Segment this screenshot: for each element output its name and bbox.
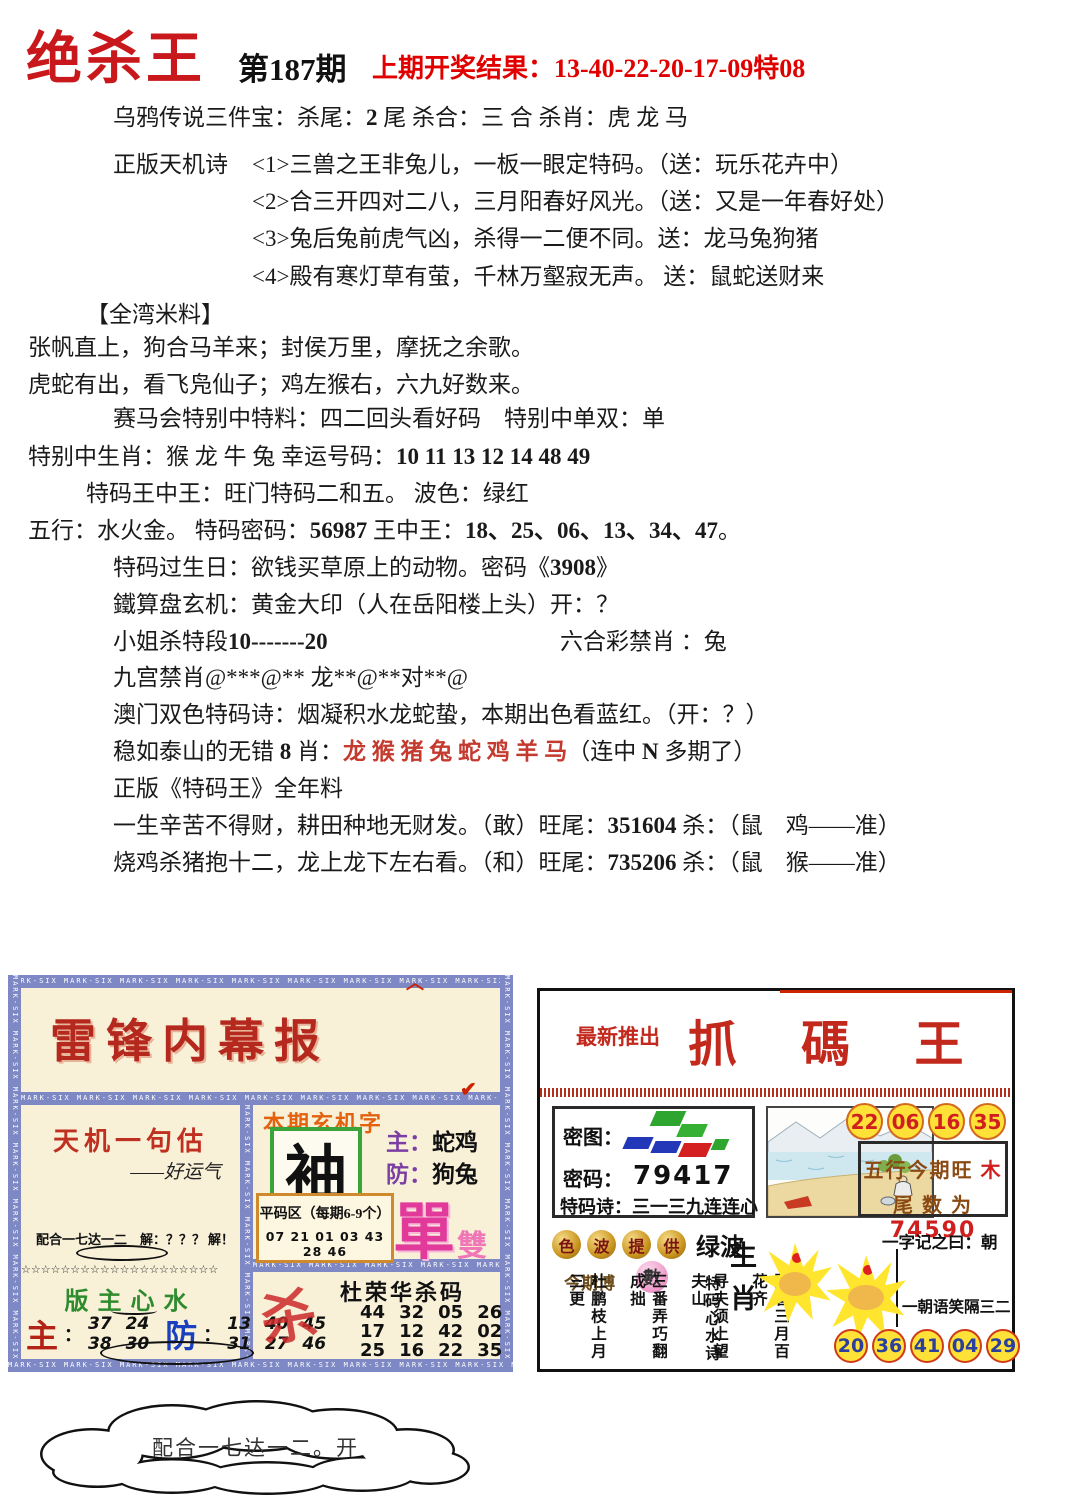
zigzag-divider	[540, 1088, 1012, 1097]
text-segment: 小姐杀特段	[113, 629, 228, 654]
text-segment: N	[642, 739, 659, 764]
lottery-ball: 22	[846, 1103, 883, 1140]
text-segment: 多期了）	[659, 739, 757, 764]
gold-coin: 供	[657, 1230, 686, 1259]
lottery-ball: 20	[834, 1329, 868, 1363]
zhu-label: 主	[26, 1311, 58, 1357]
lottery-ball: 35	[969, 1103, 1006, 1140]
shuang-character: 雙	[457, 1221, 487, 1265]
shici-value: 三一三九连连心	[632, 1197, 758, 1217]
text-segment: 赛马会特别中特料：四二回头看好码 特别中单双：单	[113, 406, 665, 431]
text-segment: 3908	[550, 555, 596, 580]
lottery-ball: 06	[887, 1103, 924, 1140]
text-segment: 九宫禁肖@***@** 龙**@**对**@	[113, 665, 468, 690]
text-segment: 六合彩禁肖 ：兔	[560, 629, 727, 654]
grid-row: 44320526	[360, 1303, 502, 1322]
text-segment: <4>殿有寒灯草有萤，千林万壑寂无声。 送：鼠蛇送财来	[252, 264, 824, 289]
text-segment: <3>兔后兔前虎气凶，杀得一二便不同。送：龙马兔狗猪	[252, 226, 818, 251]
zhuamawang-title: 抓 碼 王	[688, 1005, 990, 1076]
pingma-box: 平码区（每期6-9个） 07 21 01 03 43 28 46	[256, 1193, 394, 1263]
blue-block	[650, 1141, 681, 1153]
lottery-ball: 16	[928, 1103, 965, 1140]
leifeng-title: 雷锋内幕报	[50, 1005, 330, 1071]
zhu-animals-label: 主：	[386, 1130, 432, 1155]
promo-label: 最新推出	[576, 1021, 660, 1051]
text-segment: 735206	[608, 850, 677, 875]
text-line: 澳门双色特码诗：烟凝积水龙蛇蛰，本期出色看蓝红。（开：？）	[113, 695, 769, 729]
text-line: 张帆直上，狗合马羊来；封侯万里，摩抚之余歌。	[28, 328, 534, 362]
poem-line: 杜鹏枝上月三更	[564, 1273, 608, 1375]
lottery-ball: 36	[872, 1329, 906, 1363]
green-block	[711, 1139, 730, 1150]
text-segment: 10 11 13 12 14 48 49	[396, 444, 590, 469]
text-line: <1>三兽之王非兔儿，一板一眼定特码。（送：玩乐花卉中）	[252, 145, 853, 179]
text-line: 【全湾米料】	[86, 295, 224, 329]
text-segment: 2	[366, 105, 378, 130]
grid-cell: 17	[360, 1322, 385, 1341]
text-segment: 特码过生日：欲钱买草原上的动物。密码《	[113, 555, 550, 580]
mitu-box: 密图： 密码： 79417 特码诗：三一三九连连心	[552, 1106, 755, 1218]
text-segment: 》	[596, 555, 619, 580]
text-line: 五行：水火金。 特码密码：56987 王中王：18、25、06、13、34、47…	[28, 511, 741, 545]
text-segment: 张帆直上，狗合马羊来；封侯万里，摩抚之余歌。	[28, 335, 534, 360]
tianji-signature: ——好运气	[21, 1157, 221, 1184]
text-segment: 虎蛇有出，看飞凫仙子；鸡左猴右，六九好数来。	[28, 372, 534, 397]
bottom-number-circles: 2036410429	[834, 1329, 1020, 1363]
shama-number-grid: 443205261712420225162235	[360, 1303, 502, 1360]
zhu-animals: 主：蛇鸡	[386, 1123, 478, 1157]
text-segment: 【全湾米料】	[86, 302, 224, 327]
text-segment: 特别中生肖：猴 龙 牛 兔 幸运号码：	[28, 444, 396, 469]
zhu-animals-value: 蛇鸡	[432, 1130, 478, 1155]
text-segment: 五行：水火金。 特码密码：	[28, 518, 310, 543]
text-line: 九宫禁肖@***@** 龙**@**对**@	[113, 658, 468, 692]
hand-drawn-oval	[76, 1245, 168, 1261]
text-line: 特码王中王：旺门特码二和五。 波色：绿红	[86, 474, 529, 508]
lottery-ball: 29	[986, 1329, 1020, 1363]
wuxing-value: 木	[981, 1160, 1003, 1182]
red-top-line	[780, 990, 1012, 993]
top-number-circles: 22061635	[846, 1103, 1006, 1140]
text-segment: 特码王中王：旺门特码二和五。 波色：绿红	[86, 481, 529, 506]
stars-divider: ☆☆☆☆☆☆☆☆☆☆☆☆☆☆☆☆☆☆☆☆	[21, 1263, 240, 1276]
grid-cell: 05	[438, 1303, 463, 1322]
issue-number: 第187期	[238, 44, 347, 89]
text-segment: 8	[280, 739, 292, 764]
dan-character: 單	[393, 1181, 455, 1271]
check-mark-icon: ✔	[460, 1077, 477, 1102]
grid-row: 17124202	[360, 1322, 502, 1341]
wuxing-box: 五行今期旺 木 尾 数 为 74590	[858, 1141, 1008, 1217]
one-word-note: 一字记之曰：朝	[882, 1229, 998, 1253]
blue-block	[622, 1137, 653, 1149]
leifeng-panel: MARK-SIX MARK-SIX MARK-SIX MARK-SIX MARK…	[8, 975, 513, 1372]
text-segment: 杀：（鼠 猴——准）	[677, 850, 901, 875]
text-line: 正版《特码王》全年料	[113, 769, 343, 803]
text-segment: 澳门双色特码诗：烟凝积水龙蛇蛰，本期出色看蓝红。（开：？）	[113, 702, 769, 727]
last-draw-result: 上期开奖结果：13-40-22-20-17-09特08	[372, 48, 805, 85]
sebo-coins: 色波提供	[552, 1230, 686, 1259]
lottery-ball: 04	[948, 1329, 982, 1363]
grid-cell: 25	[360, 1341, 385, 1360]
poem-title: 特码心水诗	[700, 1275, 722, 1363]
text-line: 烧鸡杀猪抱十二，龙上龙下左右看。（和）旺尾：735206 杀：（鼠 猴——准）	[113, 843, 901, 877]
text-segment: （连中	[567, 739, 642, 764]
text-segment: 乌鸦传说三件宝：杀尾：	[113, 105, 366, 130]
zodiac-label: 生肖	[722, 1241, 761, 1327]
page-title: 绝杀王	[26, 14, 206, 95]
mitu-blocks-graphic	[623, 1111, 743, 1167]
grid-cell: 22	[438, 1341, 463, 1360]
text-line: 鐵算盘玄机：黄金大印（人在岳阳楼上头）开：？	[113, 585, 619, 619]
yichao-note: 一朝语笑隔三二	[902, 1295, 1011, 1317]
text-line: 虎蛇有出，看飞凫仙子；鸡左猴右，六九好数来。	[28, 365, 534, 399]
text-segment: 56987	[310, 518, 368, 543]
gold-coin: 提	[622, 1230, 651, 1259]
grid-cell: 42	[438, 1322, 463, 1341]
text-line: 赛马会特别中特料：四二回头看好码 特别中单双：单	[113, 399, 665, 433]
text-line: 特码过生日：欲钱买草原上的动物。密码《3908》	[113, 548, 619, 582]
text-segment: 肖：	[291, 739, 343, 764]
hand-drawn-oval	[100, 1341, 254, 1365]
cloud-text: 配合一七达一二。开	[152, 1432, 359, 1462]
text-segment: 尾 杀合：三 合 杀肖：虎 龙 马	[378, 105, 689, 130]
zhu-row: 37 24	[88, 1314, 149, 1334]
text-segment: 正版《特码王》全年料	[113, 776, 343, 801]
text-segment: 烧鸡杀猪抱十二，龙上龙下左右看。（和）旺尾：	[113, 850, 608, 875]
special-code-poem: 特码诗：三一三九连连心	[560, 1193, 758, 1219]
grid-cell: 02	[477, 1322, 502, 1341]
red-block	[678, 1143, 712, 1157]
grid-cell: 16	[399, 1341, 424, 1360]
border-strip-middle: MARK-SIX MARK-SIX MARK-SIX MARK-SIX MARK…	[21, 1092, 500, 1105]
weishu-text: 尾 数 为	[893, 1195, 973, 1217]
text-segment: 。	[718, 518, 741, 543]
text-line: <3>兔后兔前虎气凶，杀得一二便不同。送：龙马兔狗猪	[252, 219, 818, 253]
text-segment: 正版天机诗	[113, 152, 228, 177]
gold-coin: 波	[587, 1230, 616, 1259]
text-line: <2>合三开四对二八，三月阳春好风光。（送：又是一年春好处）	[252, 182, 899, 216]
caret-mark-icon: ︿	[406, 969, 424, 995]
tianji-title: 天机一句估	[21, 1121, 240, 1158]
text-segment: 10-------20	[228, 629, 328, 654]
text-segment: <1>三兽之王非兔儿，一板一眼定特码。（送：玩乐花卉中）	[252, 152, 853, 177]
green-block	[676, 1124, 708, 1137]
text-segment: <2>合三开四对二八，三月阳春好风光。（送：又是一年春好处）	[252, 189, 899, 214]
border-strip-top: MARK-SIX MARK-SIX MARK-SIX MARK-SIX MARK…	[8, 975, 513, 988]
grid-cell: 32	[399, 1303, 424, 1322]
zhuamawang-panel: 最新推出 抓 碼 王 密图： 密码： 79417 特码诗：三一三九连连心	[537, 988, 1015, 1372]
pingma-numbers: 07 21 01 03 43 28 46	[259, 1229, 391, 1259]
text-segment: 稳如泰山的无错	[113, 739, 280, 764]
text-segment: 一生辛苦不得财，耕田种地无财发。（敢）旺尾：	[113, 813, 608, 838]
text-line: 六合彩禁肖 ：兔	[560, 622, 727, 656]
zhu-colon: ：	[64, 1321, 82, 1347]
gold-coin: 色	[552, 1230, 581, 1259]
grid-cell: 26	[477, 1303, 502, 1322]
shici-label: 特码诗：	[560, 1197, 632, 1217]
tianji-footer-right: 解！	[208, 1229, 234, 1248]
cloud-callout: 配合一七达一二。开	[22, 1392, 482, 1500]
text-line: 稳如泰山的无错 8 肖：龙 猴 猪 兔 蛇 鸡 羊 马（连中 N 多期了）	[113, 732, 756, 766]
wuxing-text: 五行今期旺	[864, 1160, 981, 1182]
grid-cell: 12	[399, 1322, 424, 1341]
poem-line: 三番弄巧翻成拙	[625, 1273, 669, 1375]
text-segment: 杀：（鼠 鸡——准）	[677, 813, 901, 838]
grid-cell: 44	[360, 1303, 385, 1322]
text-line: 特别中生肖：猴 龙 牛 兔 幸运号码：10 11 13 12 14 48 49	[28, 437, 590, 471]
text-segment: 鐵算盘玄机：黄金大印（人在岳阳楼上头）开：？	[113, 592, 619, 617]
text-segment: 18、25、06、13、34、47	[465, 518, 718, 543]
grid-row: 25162235	[360, 1341, 502, 1360]
highlighted-text: 龙 猴 猪 兔 蛇 鸡 羊 马	[343, 739, 567, 764]
text-segment: 王中王：	[367, 518, 465, 543]
starburst-graphic	[826, 1255, 906, 1339]
text-line: 乌鸦传说三件宝：杀尾：2 尾 杀合：三 合 杀肖：虎 龙 马	[113, 98, 688, 132]
mima-value: 79417	[633, 1161, 733, 1191]
text-line: 正版天机诗	[113, 145, 228, 179]
text-line: 小姐杀特段10-------20	[113, 622, 328, 656]
sebo-coin-row: 色波提供 绿波	[552, 1227, 744, 1262]
mitu-label: 密图：	[563, 1121, 623, 1150]
text-segment: 351604	[608, 813, 677, 838]
mima-label: 密码：	[563, 1163, 623, 1192]
pingma-title: 平码区（每期6-9个）	[259, 1203, 391, 1223]
text-line: <4>殿有寒灯草有萤，千林万壑寂无声。 送：鼠蛇送财来	[252, 257, 824, 291]
lottery-ball: 41	[910, 1329, 944, 1363]
grid-cell: 35	[477, 1341, 502, 1360]
border-strip-left: MARK-SIX MARK-SIX MARK-SIX MARK-SIX MARK…	[8, 975, 21, 1372]
text-line: 一生辛苦不得财，耕田种地无财发。（敢）旺尾：351604 杀：（鼠 鸡——准）	[113, 806, 901, 840]
